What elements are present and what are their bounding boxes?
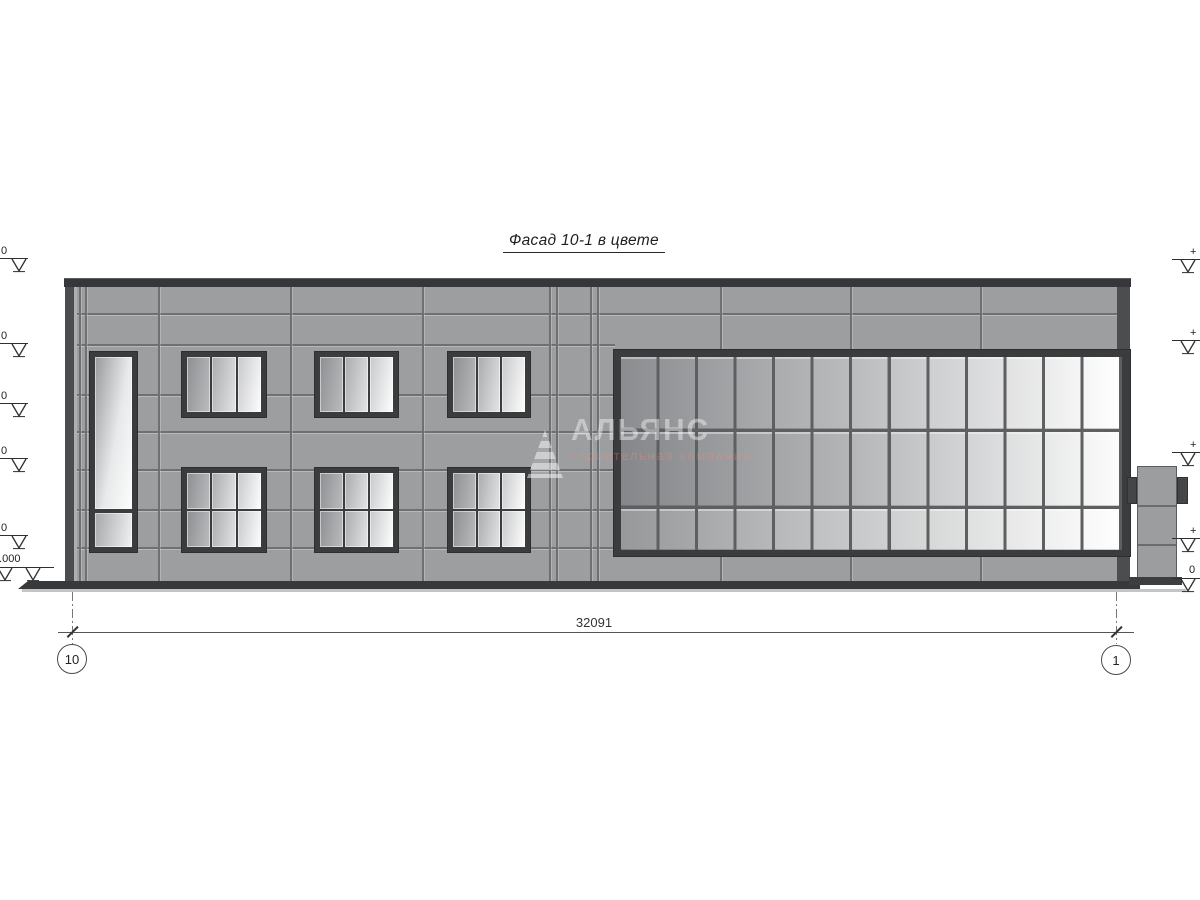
curtain-wall-row — [621, 509, 1122, 550]
panel-joint — [1138, 505, 1176, 507]
glass-pane — [238, 357, 261, 412]
panel-joint — [158, 287, 160, 581]
panel-joint — [290, 287, 292, 581]
glass-pane — [345, 357, 368, 412]
extension-line — [72, 592, 73, 644]
pilaster-flange-right — [1177, 477, 1188, 504]
panel-joint — [65, 431, 615, 433]
elevation-label: + — [1190, 246, 1196, 258]
curtain-wall-row — [621, 357, 1122, 429]
pilaster — [1137, 466, 1177, 583]
glass-pane — [478, 357, 501, 412]
panel-joint — [422, 287, 424, 581]
window-lower-3 — [448, 468, 530, 552]
curtain-wall-row — [621, 432, 1122, 506]
glass-pane — [187, 473, 210, 509]
parapet-cap — [64, 278, 1131, 287]
glass-pane — [320, 357, 343, 412]
curtain-wall — [614, 350, 1130, 556]
glass-pane — [238, 511, 261, 547]
elevation-label: 1.000 — [0, 553, 21, 565]
plinth-end — [18, 581, 28, 589]
glass-pane — [502, 473, 525, 509]
glass-pane — [238, 473, 261, 509]
left-corner-highlight — [74, 287, 77, 581]
elevation-arrow-icon — [0, 567, 14, 582]
panel-joint — [597, 287, 599, 581]
window-lower-2 — [315, 468, 398, 552]
elevation-label: + — [1190, 327, 1196, 339]
plinth — [28, 581, 1140, 589]
elevation-label: 0 — [1, 390, 7, 402]
panel-joint — [79, 287, 81, 581]
glass-pane — [212, 357, 235, 412]
drawing-canvas: Фасад 10-1 в цвете — [0, 0, 1200, 900]
glass-pane — [453, 473, 476, 509]
elevation-arrow-icon — [1179, 259, 1197, 274]
elevation-arrow-icon — [1179, 538, 1197, 553]
glass-pane — [502, 357, 525, 412]
elevation-label: 0 — [1189, 564, 1195, 576]
elevation-arrow-icon — [10, 258, 28, 273]
elevation-arrow-icon — [24, 567, 42, 582]
panel-joint — [85, 287, 87, 581]
glass-pane — [453, 357, 476, 412]
glass-pane — [212, 511, 235, 547]
panel-joint — [590, 287, 592, 581]
elevation-label: 0 — [1, 330, 7, 342]
left-corner-strip — [65, 278, 74, 581]
dimension-value: 32091 — [494, 615, 694, 630]
glass-pane — [370, 357, 393, 412]
glass-pane — [187, 511, 210, 547]
glass-pane — [345, 473, 368, 509]
glass-pane — [345, 511, 368, 547]
glass-pane — [95, 513, 132, 547]
window-upper-3 — [448, 352, 530, 417]
elevation-arrow-icon — [1179, 578, 1197, 593]
glass-pane — [453, 511, 476, 547]
glass-pane — [95, 357, 132, 509]
glass-pane — [320, 511, 343, 547]
pilaster-flange-left — [1127, 477, 1137, 504]
elevation-label: + — [1190, 525, 1196, 537]
window-lower-1 — [182, 468, 266, 552]
glass-pane — [370, 511, 393, 547]
elevation-label: 0 — [1, 445, 7, 457]
glass-pane — [212, 473, 235, 509]
elevation-label: 0 — [1, 522, 7, 534]
elevation-arrow-icon — [1179, 340, 1197, 355]
drawing-title: Фасад 10-1 в цвете — [503, 232, 665, 253]
tall-stair-window — [90, 352, 137, 552]
panel-joint — [1138, 544, 1176, 546]
panel-joint — [556, 287, 558, 581]
glass-pane — [320, 473, 343, 509]
extension-line — [1116, 592, 1117, 644]
dimension-line — [58, 632, 1134, 633]
elevation-arrow-icon — [10, 343, 28, 358]
axis-bubble-1: 1 — [1101, 645, 1131, 675]
elevation-arrow-icon — [10, 535, 28, 550]
glass-pane — [187, 357, 210, 412]
glass-pane — [502, 511, 525, 547]
glass-pane — [478, 473, 501, 509]
elevation-label: + — [1190, 439, 1196, 451]
window-upper-2 — [315, 352, 398, 417]
elevation-arrow-icon — [10, 403, 28, 418]
elevation-arrow-icon — [10, 458, 28, 473]
glass-pane — [370, 473, 393, 509]
glass-pane — [478, 511, 501, 547]
elevation-arrow-icon — [1179, 452, 1197, 467]
window-upper-1 — [182, 352, 266, 417]
curtain-wall-glazing — [621, 357, 1122, 550]
elevation-label: 0 — [1, 245, 7, 257]
ground-line — [22, 589, 1186, 592]
panel-joint — [65, 344, 615, 346]
axis-bubble-10: 10 — [57, 644, 87, 674]
panel-joint — [549, 287, 551, 581]
